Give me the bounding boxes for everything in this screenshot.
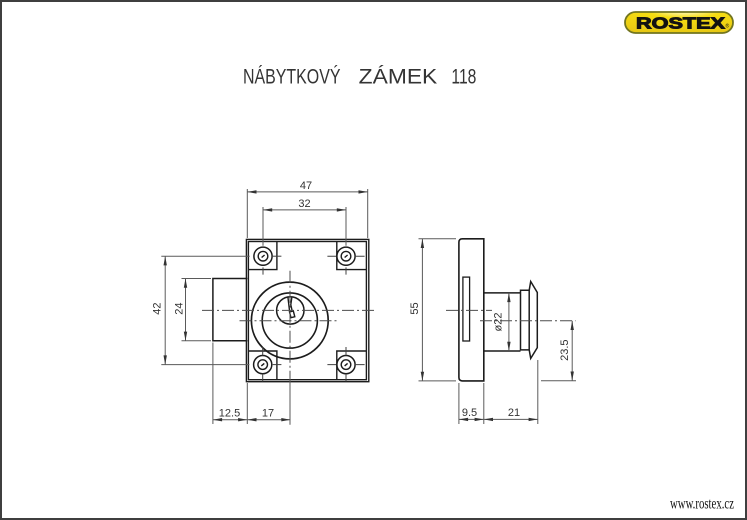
svg-text:12.5: 12.5 — [219, 408, 240, 420]
svg-text:NÁBYTKOVÝ: NÁBYTKOVÝ — [243, 63, 341, 88]
svg-text:47: 47 — [300, 180, 312, 192]
svg-text:118: 118 — [451, 64, 476, 88]
svg-text:9.5: 9.5 — [462, 407, 477, 419]
svg-text:42: 42 — [151, 302, 163, 314]
svg-text:32: 32 — [298, 198, 310, 210]
svg-text:23.5: 23.5 — [559, 339, 571, 360]
svg-text:www.rostex.cz: www.rostex.cz — [670, 495, 734, 512]
svg-text:17: 17 — [262, 408, 274, 420]
svg-text:ZÁMEK: ZÁMEK — [359, 63, 438, 88]
svg-text:ROSTEX: ROSTEX — [636, 15, 725, 32]
svg-text:24: 24 — [174, 302, 186, 314]
svg-text:55: 55 — [409, 302, 421, 314]
svg-text:21: 21 — [508, 407, 520, 419]
svg-text:ø22: ø22 — [493, 313, 505, 332]
svg-text:®: ® — [726, 23, 730, 30]
